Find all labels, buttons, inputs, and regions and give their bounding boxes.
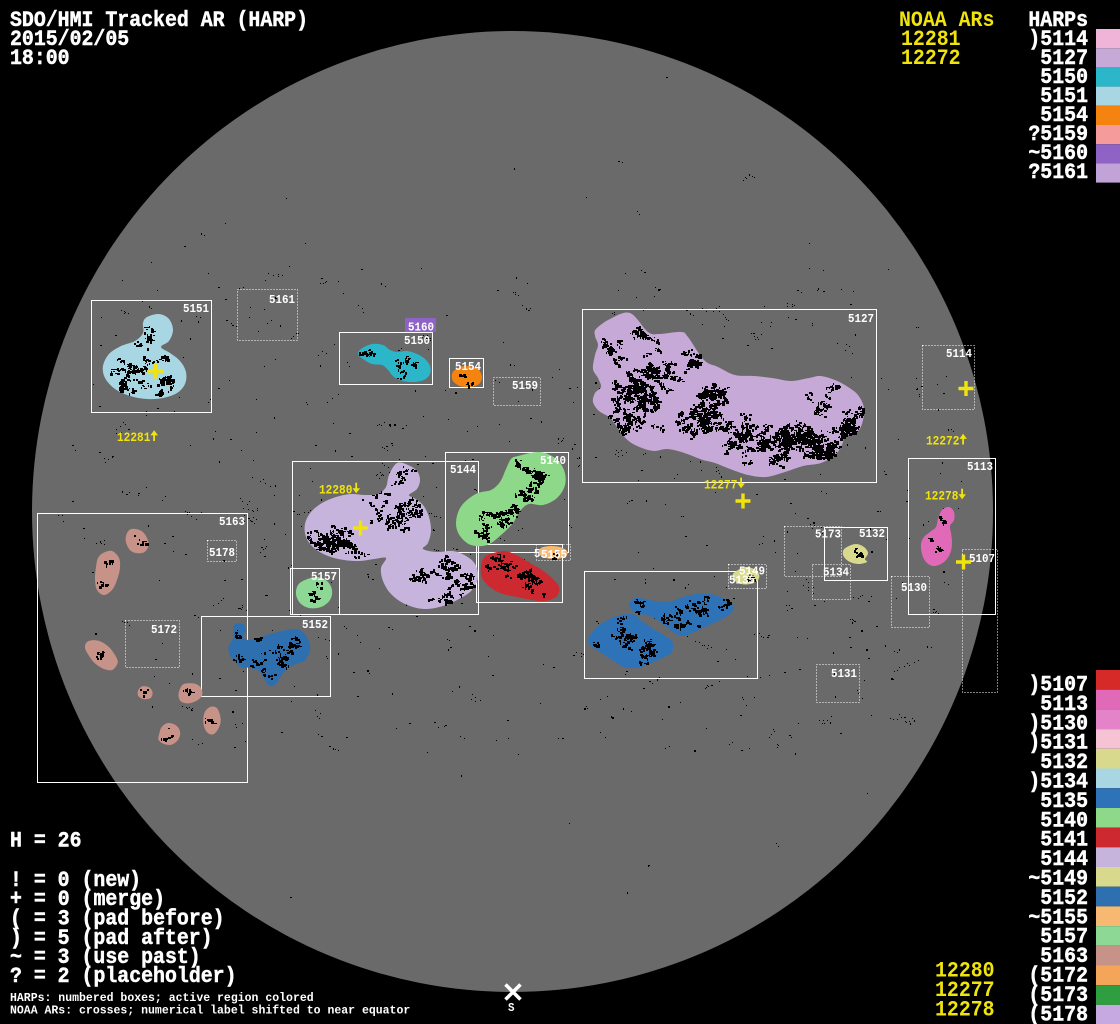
- svg-text:5144: 5144: [450, 463, 477, 477]
- svg-text:5134: 5134: [823, 566, 850, 580]
- svg-text:HARPs: numbered boxes; active: HARPs: numbered boxes; active region col…: [10, 992, 314, 1005]
- svg-text:(5178: (5178: [1028, 1002, 1088, 1024]
- svg-text:5132: 5132: [859, 527, 885, 541]
- svg-text:12272: 12272: [926, 434, 960, 449]
- svg-text:5107: 5107: [969, 552, 995, 566]
- svg-text:12277: 12277: [704, 478, 737, 493]
- svg-text:5140: 5140: [540, 454, 566, 468]
- svg-text:5155: 5155: [541, 548, 567, 562]
- svg-text:18:00: 18:00: [10, 46, 70, 71]
- svg-text:5173: 5173: [815, 528, 841, 542]
- svg-text:5149: 5149: [739, 565, 765, 579]
- svg-text:5114: 5114: [946, 347, 973, 361]
- svg-text:12280: 12280: [319, 483, 353, 498]
- svg-text:12281: 12281: [117, 430, 151, 445]
- svg-text:5150: 5150: [404, 334, 430, 348]
- svg-text:5161: 5161: [269, 293, 295, 307]
- svg-text:5163: 5163: [219, 515, 245, 529]
- svg-text:5178: 5178: [209, 546, 235, 560]
- svg-text:5160: 5160: [408, 321, 434, 335]
- svg-text:5157: 5157: [311, 570, 337, 584]
- svg-text:S: S: [508, 1001, 515, 1015]
- svg-text:5127: 5127: [848, 312, 874, 326]
- svg-text:5113: 5113: [967, 460, 993, 474]
- svg-text:12278: 12278: [935, 997, 995, 1022]
- svg-text:5154: 5154: [455, 360, 482, 374]
- svg-text:5172: 5172: [151, 623, 177, 637]
- svg-text:12278: 12278: [925, 489, 959, 504]
- svg-text:5152: 5152: [302, 618, 328, 632]
- svg-text:? = 2 (placeholder): ? = 2 (placeholder): [10, 964, 237, 989]
- svg-text:H = 26: H = 26: [10, 829, 82, 854]
- svg-text:5151: 5151: [183, 302, 209, 316]
- svg-text:?5161: ?5161: [1028, 160, 1088, 185]
- svg-text:5159: 5159: [512, 379, 538, 393]
- svg-text:12272: 12272: [901, 46, 961, 71]
- svg-text:5130: 5130: [901, 581, 927, 595]
- svg-text:5131: 5131: [831, 667, 857, 681]
- svg-text:NOAA ARs: crosses; numerical l: NOAA ARs: crosses; numerical label shift…: [10, 1005, 410, 1018]
